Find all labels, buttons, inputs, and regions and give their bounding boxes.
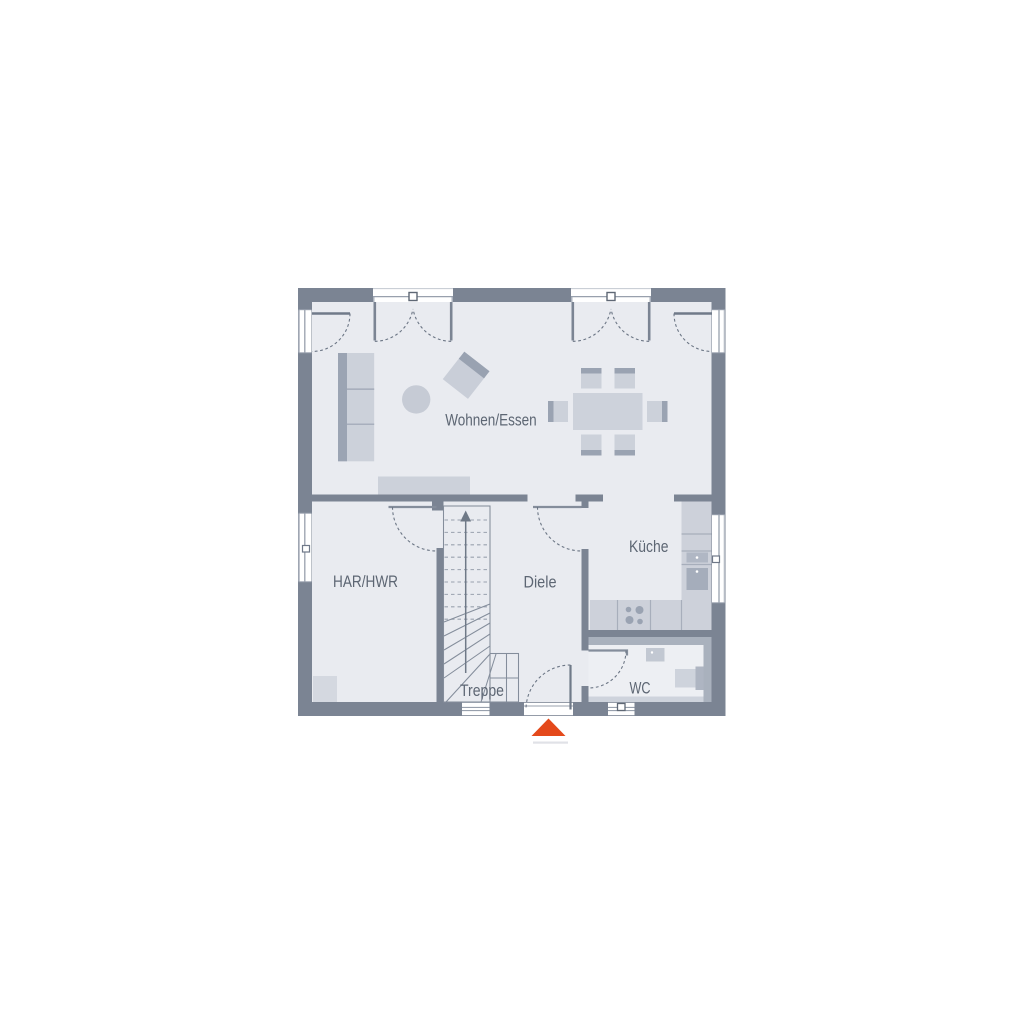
svg-text:Treppe: Treppe (460, 682, 504, 700)
svg-text:WC: WC (630, 680, 651, 698)
svg-text:Wohnen/Essen: Wohnen/Essen (445, 411, 537, 430)
svg-text:Diele: Diele (524, 574, 557, 592)
svg-text:Küche: Küche (629, 538, 669, 556)
svg-text:HAR/HWR: HAR/HWR (333, 573, 398, 591)
